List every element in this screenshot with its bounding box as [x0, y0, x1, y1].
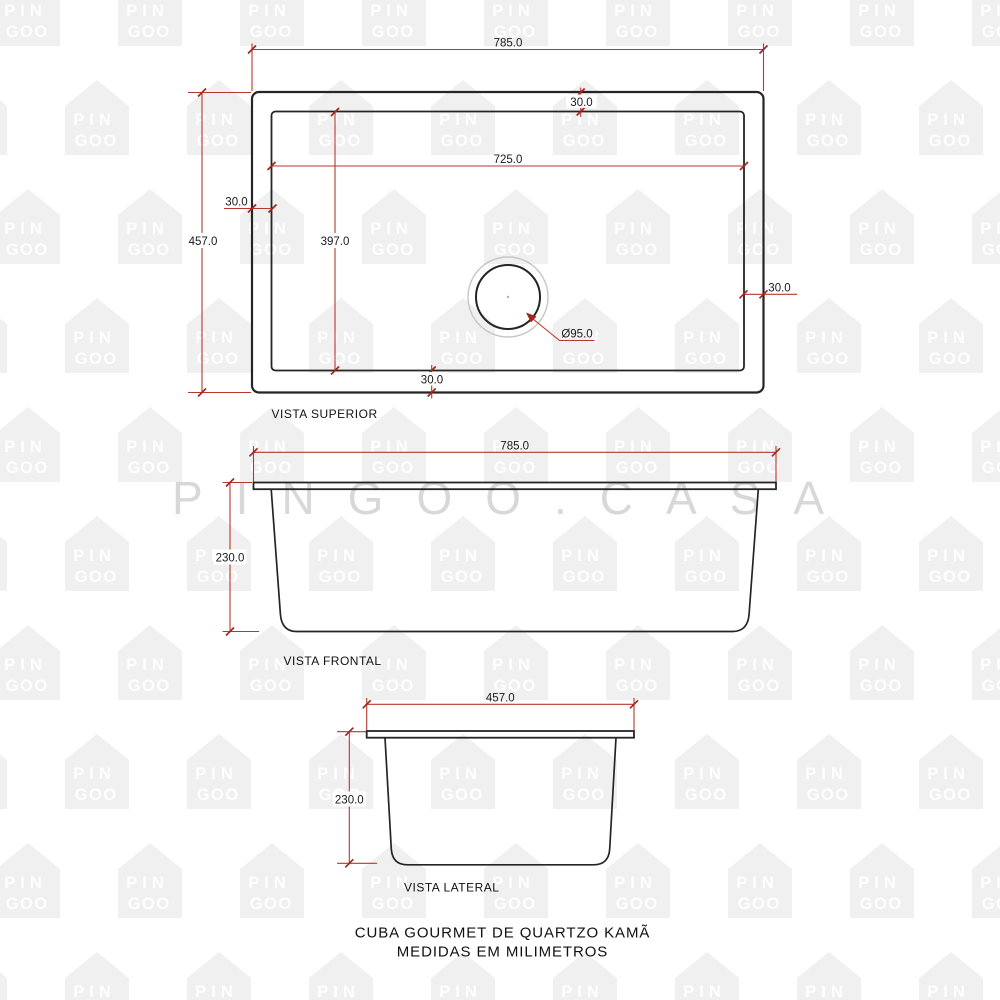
watermark-house: PINGOO: [0, 80, 7, 155]
watermark-house-text-goo: GOO: [197, 350, 240, 368]
watermark-house: PINGOO: [972, 625, 1000, 700]
watermark-house: PINGOO: [118, 843, 182, 918]
watermark-house-text-goo: GOO: [6, 241, 49, 259]
watermark-house: PINGOO: [309, 952, 373, 1000]
dim-label-offset-right: 30.0: [768, 282, 790, 294]
watermark-house-text-goo: GOO: [929, 786, 972, 804]
watermark-house: PINGOO: [850, 0, 914, 46]
watermark-house-text-goo: GOO: [685, 786, 728, 804]
watermark-house-text-pin: PIN: [73, 547, 116, 565]
watermark-house: PINGOO: [187, 734, 251, 809]
watermark-house-text-goo: GOO: [982, 459, 1000, 477]
watermark-house-text-goo: GOO: [319, 568, 362, 586]
watermark-house: PINGOO: [65, 516, 129, 591]
watermark-house-text-goo: GOO: [441, 132, 484, 150]
watermark-house-text-pin: PIN: [736, 656, 779, 674]
watermark-house-text-pin: PIN: [248, 874, 291, 892]
dim-label-offset-bottom: 30.0: [421, 374, 443, 386]
watermark-house-text-pin: PIN: [858, 220, 901, 238]
watermark-house: PINGOO: [362, 189, 426, 264]
watermark-house: PINGOO: [972, 189, 1000, 264]
watermark-house-text-goo: GOO: [75, 350, 118, 368]
watermark-house-text-goo: GOO: [372, 23, 415, 41]
watermark-house-text-goo: GOO: [807, 350, 850, 368]
watermark-house-text-pin: PIN: [683, 111, 726, 129]
watermark-house: PINGOO: [675, 952, 739, 1000]
watermark-house: PINGOO: [362, 0, 426, 46]
watermark-house-text-goo: GOO: [75, 568, 118, 586]
dim-label-top-width: 785.0: [494, 38, 523, 50]
watermark-house-text-pin: PIN: [492, 656, 535, 674]
watermark-house-text-goo: GOO: [441, 568, 484, 586]
dim-label-offset-top: 30.0: [570, 97, 592, 109]
watermark-house: PINGOO: [0, 734, 7, 809]
view-label-lateral: VISTA LATERAL: [404, 881, 499, 895]
watermark-house-text-pin: PIN: [614, 220, 657, 238]
dim-label-side-width: 457.0: [486, 692, 515, 704]
watermark-house-text-pin: PIN: [561, 547, 604, 565]
watermark-house: PINGOO: [972, 0, 1000, 46]
dim-inner-width: 725.0: [268, 154, 749, 170]
watermark-house-text-pin: PIN: [73, 983, 116, 1000]
watermark-house-text-pin: PIN: [4, 220, 47, 238]
technical-drawing: PINGOOPINGOOPINGOOPINGOOPINGOOPINGOOPING…: [0, 0, 1000, 1000]
watermark-house-text-pin: PIN: [858, 438, 901, 456]
watermark-house-text-goo: GOO: [616, 677, 659, 695]
watermark-house-text-pin: PIN: [683, 983, 726, 1000]
watermark-house-text-pin: PIN: [614, 2, 657, 20]
watermark-house-text-goo: GOO: [860, 459, 903, 477]
view-label-frontal: VISTA FRONTAL: [284, 654, 382, 668]
watermark-house-text-goo: GOO: [128, 459, 171, 477]
watermark-house: PINGOO: [850, 843, 914, 918]
watermark-house-text-goo: GOO: [860, 23, 903, 41]
watermark-house-text-goo: GOO: [197, 568, 240, 586]
watermark-house: PINGOO: [553, 734, 617, 809]
watermark-house-text-pin: PIN: [317, 983, 360, 1000]
watermark-house-text-pin: PIN: [370, 438, 413, 456]
watermark-house-text-goo: GOO: [563, 786, 606, 804]
watermark-house-text-goo: GOO: [372, 677, 415, 695]
watermark-house-text-goo: GOO: [982, 23, 1000, 41]
watermark-house-text-goo: GOO: [807, 568, 850, 586]
dim-label-inner-width: 725.0: [494, 154, 523, 166]
watermark-house: PINGOO: [919, 298, 983, 373]
watermark-house-text-pin: PIN: [858, 656, 901, 674]
watermark-house: PINGOO: [728, 189, 792, 264]
watermark-house: PINGOO: [728, 843, 792, 918]
watermark-house: PINGOO: [797, 298, 861, 373]
watermark-house-text-goo: GOO: [128, 241, 171, 259]
watermark-house-text-pin: PIN: [126, 2, 169, 20]
watermark-house-text-pin: PIN: [614, 874, 657, 892]
watermark-house-text-goo: GOO: [860, 895, 903, 913]
watermark-house: PINGOO: [919, 952, 983, 1000]
watermark-house-text-pin: PIN: [805, 765, 848, 783]
watermark-house-text-pin: PIN: [439, 547, 482, 565]
watermark-house: PINGOO: [431, 516, 495, 591]
watermark-house-text-goo: GOO: [929, 350, 972, 368]
dim-label-inner-height: 397.0: [321, 236, 350, 248]
watermark-house: PINGOO: [0, 625, 60, 700]
watermark-house-text-pin: PIN: [195, 983, 238, 1000]
watermark-house-text-goo: GOO: [6, 895, 49, 913]
watermark-house-text-pin: PIN: [439, 983, 482, 1000]
watermark-house-text-goo: GOO: [250, 23, 293, 41]
watermark-house-text-pin: PIN: [73, 329, 116, 347]
watermark-house-text-pin: PIN: [439, 111, 482, 129]
watermark-house-text-goo: GOO: [860, 241, 903, 259]
watermark-house: PINGOO: [118, 189, 182, 264]
dim-label-front-width: 785.0: [500, 440, 529, 452]
watermark-house: PINGOO: [606, 189, 670, 264]
watermark-house: PINGOO: [797, 516, 861, 591]
watermark-house-text-goo: GOO: [982, 241, 1000, 259]
watermark-house-text-pin: PIN: [805, 329, 848, 347]
watermark-house-text-goo: GOO: [494, 241, 537, 259]
watermark-house: PINGOO: [972, 843, 1000, 918]
watermark-house: PINGOO: [187, 952, 251, 1000]
watermark-house-text-goo: GOO: [197, 786, 240, 804]
watermark-house-text-pin: PIN: [439, 329, 482, 347]
watermark-house-text-pin: PIN: [492, 220, 535, 238]
watermark-house-text-pin: PIN: [736, 874, 779, 892]
watermark-house-text-goo: GOO: [738, 677, 781, 695]
watermark-house-text-goo: GOO: [75, 132, 118, 150]
watermark-house: PINGOO: [187, 298, 251, 373]
watermark-house-text-pin: PIN: [736, 438, 779, 456]
watermark-house-text-pin: PIN: [126, 874, 169, 892]
watermark-house-text-pin: PIN: [980, 874, 1000, 892]
watermark-house-text-pin: PIN: [683, 547, 726, 565]
watermark-house-text-pin: PIN: [73, 765, 116, 783]
watermark-house: PINGOO: [675, 734, 739, 809]
watermark-house: PINGOO: [919, 734, 983, 809]
watermark-house: PINGOO: [65, 734, 129, 809]
watermark-house-text-goo: GOO: [929, 568, 972, 586]
watermark-house-text-pin: PIN: [980, 2, 1000, 20]
watermark-house: PINGOO: [797, 952, 861, 1000]
watermark-house: PINGOO: [606, 0, 670, 46]
watermark-house-text-goo: GOO: [128, 677, 171, 695]
title-line-2: MEDIDAS EM MILIMETROS: [397, 944, 608, 961]
watermark-house-text-goo: GOO: [982, 677, 1000, 695]
watermark-house-text-pin: PIN: [683, 329, 726, 347]
watermark-house-text-pin: PIN: [980, 438, 1000, 456]
watermark-house-text-goo: GOO: [563, 350, 606, 368]
watermark-house-text-pin: PIN: [927, 983, 970, 1000]
watermark-house-text-pin: PIN: [4, 438, 47, 456]
watermark-house: PINGOO: [431, 734, 495, 809]
watermark-house-text-pin: PIN: [561, 111, 604, 129]
watermark-house-text-pin: PIN: [805, 111, 848, 129]
watermark-house-text-pin: PIN: [370, 220, 413, 238]
watermark-house: PINGOO: [65, 298, 129, 373]
watermark-house: PINGOO: [728, 625, 792, 700]
watermark-house-text-pin: PIN: [317, 329, 360, 347]
watermark-house-text-pin: PIN: [4, 874, 47, 892]
watermark-house-text-goo: GOO: [685, 350, 728, 368]
watermark-house-text-pin: PIN: [4, 656, 47, 674]
watermark-house-text-goo: GOO: [807, 132, 850, 150]
watermark-house-text-pin: PIN: [126, 656, 169, 674]
watermark-house-text-goo: GOO: [982, 895, 1000, 913]
watermark-house-text-pin: PIN: [927, 765, 970, 783]
watermark-house: PINGOO: [797, 80, 861, 155]
watermark-house-text-goo: GOO: [441, 350, 484, 368]
watermark-house-text-pin: PIN: [317, 547, 360, 565]
watermark-house: PINGOO: [431, 298, 495, 373]
watermark-house-text-pin: PIN: [561, 983, 604, 1000]
watermark-house-text-pin: PIN: [248, 2, 291, 20]
watermark-house-text-pin: PIN: [683, 765, 726, 783]
watermark-house-text-pin: PIN: [126, 438, 169, 456]
watermark-house-text-goo: GOO: [738, 895, 781, 913]
watermark-house-text-goo: GOO: [563, 132, 606, 150]
watermark-house: PINGOO: [728, 0, 792, 46]
watermark-house-text-pin: PIN: [561, 765, 604, 783]
watermark-house-text-goo: GOO: [6, 459, 49, 477]
watermark-house: PINGOO: [850, 407, 914, 482]
watermark-house-text-pin: PIN: [248, 438, 291, 456]
watermark-house: PINGOO: [972, 407, 1000, 482]
watermark-house-text-pin: PIN: [736, 220, 779, 238]
watermark-house-text-goo: GOO: [197, 132, 240, 150]
watermark-house: PINGOO: [675, 516, 739, 591]
watermark-house-text-goo: GOO: [75, 786, 118, 804]
watermark-house: PINGOO: [187, 80, 251, 155]
watermark-house: PINGOO: [0, 407, 60, 482]
watermark-house: PINGOO: [65, 952, 129, 1000]
dim-label-left-height: 457.0: [189, 236, 218, 248]
watermark-house-text-pin: PIN: [492, 2, 535, 20]
watermark-house-text-goo: GOO: [128, 23, 171, 41]
view-label-superior: VISTA SUPERIOR: [272, 407, 378, 421]
watermark-house: PINGOO: [65, 80, 129, 155]
watermark-house: PINGOO: [675, 298, 739, 373]
watermark-house-text-pin: PIN: [73, 111, 116, 129]
watermark-house-text-goo: GOO: [441, 786, 484, 804]
watermark-house-text-goo: GOO: [738, 23, 781, 41]
watermark-house: PINGOO: [484, 189, 548, 264]
watermark-house-text-pin: PIN: [927, 111, 970, 129]
watermark-house-text-pin: PIN: [858, 874, 901, 892]
watermark-house-text-goo: GOO: [616, 23, 659, 41]
drawing-canvas: PINGOOPINGOOPINGOOPINGOOPINGOOPINGOOPING…: [0, 0, 1000, 1000]
watermark-house-text-goo: GOO: [250, 677, 293, 695]
dim-label-front-height: 230.0: [216, 553, 245, 565]
watermark-house: PINGOO: [606, 625, 670, 700]
watermark-house: PINGOO: [118, 625, 182, 700]
watermark-house: PINGOO: [309, 516, 373, 591]
watermark-house: PINGOO: [850, 189, 914, 264]
watermark-house-text-pin: PIN: [439, 765, 482, 783]
watermark-house-text-pin: PIN: [805, 983, 848, 1000]
watermark-house: PINGOO: [919, 516, 983, 591]
watermark-house: PINGOO: [850, 625, 914, 700]
watermark-house-text-pin: PIN: [195, 765, 238, 783]
watermark-house-text-goo: GOO: [860, 677, 903, 695]
watermark-house-text-pin: PIN: [927, 547, 970, 565]
watermark-house-text-pin: PIN: [980, 220, 1000, 238]
watermark-house: PINGOO: [118, 0, 182, 46]
watermark-house-text-goo: GOO: [616, 241, 659, 259]
watermark-house: PINGOO: [728, 407, 792, 482]
watermark-house: PINGOO: [606, 843, 670, 918]
watermark-house-text-pin: PIN: [248, 220, 291, 238]
watermark-house: PINGOO: [606, 407, 670, 482]
watermark-house: PINGOO: [553, 516, 617, 591]
watermark-house-text-pin: PIN: [614, 438, 657, 456]
brand-watermark-text: PINGOO.CASA: [172, 472, 857, 524]
watermark-house: PINGOO: [240, 843, 304, 918]
watermark-house-text-pin: PIN: [4, 2, 47, 20]
drawing-title: CUBA GOURMET DE QUARTZO KAMÃ MEDIDAS EM …: [355, 925, 651, 961]
drain-center-mark: [507, 296, 509, 298]
watermark-house-text-goo: GOO: [372, 895, 415, 913]
watermark-house: PINGOO: [0, 189, 60, 264]
watermark-house-text-pin: PIN: [805, 547, 848, 565]
dim-offset-right: 30.0: [740, 282, 798, 298]
dim-label-side-height: 230.0: [335, 795, 364, 807]
watermark-house: PINGOO: [0, 843, 60, 918]
watermark-house: PINGOO: [240, 0, 304, 46]
watermark-house-text-pin: PIN: [370, 2, 413, 20]
watermark-house-text-pin: PIN: [317, 765, 360, 783]
watermark-house: PINGOO: [0, 0, 60, 46]
watermark-house: PINGOO: [484, 625, 548, 700]
dim-label-offset-left: 30.0: [225, 197, 247, 209]
watermark-house-text-pin: PIN: [614, 656, 657, 674]
watermark-house: PINGOO: [0, 298, 7, 373]
watermark-house-text-pin: PIN: [927, 329, 970, 347]
watermark-house: PINGOO: [0, 516, 7, 591]
watermark-house: PINGOO: [797, 734, 861, 809]
side-flange-outline: [367, 731, 634, 738]
watermark-house-text-pin: PIN: [980, 656, 1000, 674]
watermark-house-text-goo: GOO: [319, 350, 362, 368]
watermark-house-text-goo: GOO: [685, 132, 728, 150]
watermark-house-text-goo: GOO: [6, 23, 49, 41]
watermark-house: PINGOO: [919, 80, 983, 155]
watermark-house-text-pin: PIN: [126, 220, 169, 238]
watermark-house: PINGOO: [309, 298, 373, 373]
watermark-house: PINGOO: [0, 952, 7, 1000]
watermark-house-text-goo: GOO: [563, 568, 606, 586]
watermark-house-text-goo: GOO: [685, 568, 728, 586]
dim-top-width: 785.0: [248, 38, 768, 92]
watermark-house: PINGOO: [118, 407, 182, 482]
watermark-house-text-goo: GOO: [807, 786, 850, 804]
watermark-house-text-goo: GOO: [372, 241, 415, 259]
title-line-1: CUBA GOURMET DE QUARTZO KAMÃ: [355, 925, 651, 942]
dim-label-drain-diameter: Ø95.0: [561, 329, 592, 341]
watermark-house-text-goo: GOO: [494, 895, 537, 913]
watermark-house-text-goo: GOO: [128, 895, 171, 913]
watermark-house-text-goo: GOO: [250, 895, 293, 913]
watermark-house-text-pin: PIN: [317, 111, 360, 129]
watermark-house-text-pin: PIN: [858, 2, 901, 20]
watermark-house-text-goo: GOO: [616, 895, 659, 913]
watermark-house-text-goo: GOO: [6, 677, 49, 695]
watermark-house-text-goo: GOO: [929, 132, 972, 150]
watermark-house-text-pin: PIN: [736, 2, 779, 20]
watermark-house-text-goo: GOO: [319, 132, 362, 150]
